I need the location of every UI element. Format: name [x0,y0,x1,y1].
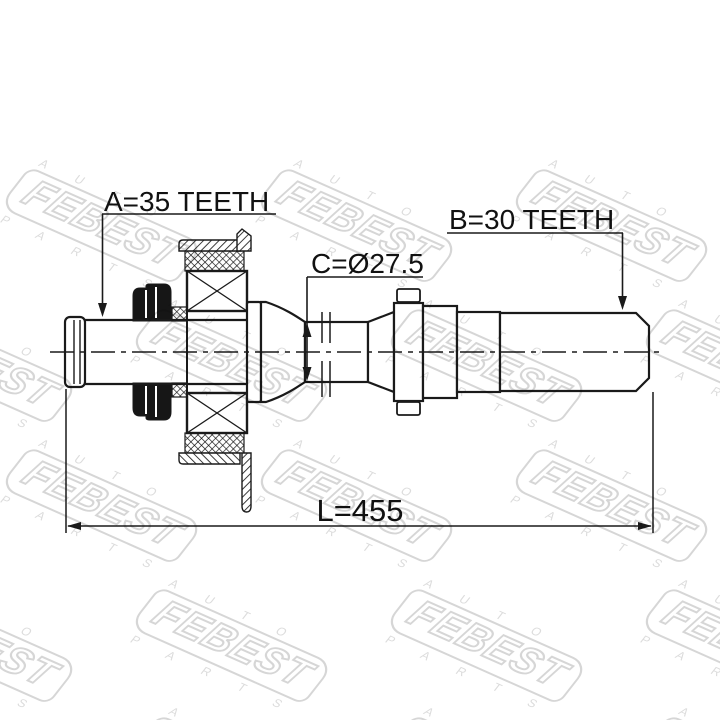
dimension-b-leader [447,233,627,310]
bracket-tail [242,453,251,512]
ring-bump-top [397,289,420,302]
dimension-c-label: C=Ø27.5 [311,248,424,279]
bracket-flange-band [179,240,240,251]
ring-bump-bottom [397,402,420,415]
dimension-b-label: B=30 TEETH [449,204,614,235]
bracket-lip [237,229,251,251]
drive-shaft-diagram-page: A=35 TEETH B=30 TEETH C=Ø27.5 L=455 A U … [0,0,720,720]
bearing-and-seal-upper-half [133,240,247,321]
dimension-l-label: L=455 [316,493,403,528]
seal-ring-section [133,284,171,321]
shaft-technical-drawing: A=35 TEETH B=30 TEETH C=Ø27.5 L=455 [0,0,720,720]
dimension-a-label: A=35 TEETH [104,186,269,217]
rubber-crosshatch-band [185,251,244,271]
